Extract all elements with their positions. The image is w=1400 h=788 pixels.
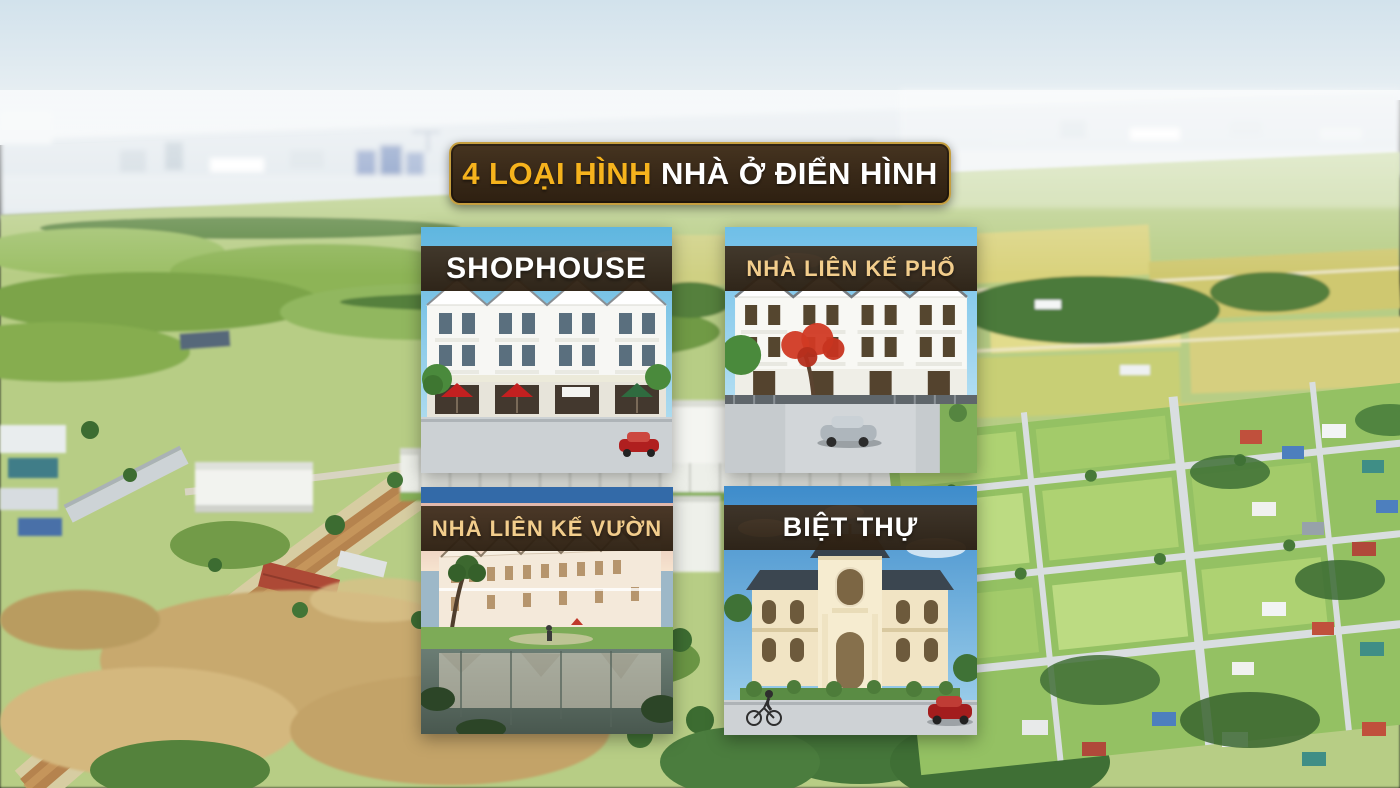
title-banner: 4 LOẠI HÌNH NHÀ Ở ĐIỂN HÌNH <box>449 142 951 205</box>
title-highlight: 4 LOẠI HÌNH <box>462 156 652 192</box>
card-title-band: NHÀ LIÊN KẾ VƯỜN <box>421 506 673 551</box>
card-label-nha-lien-ke-vuon: NHÀ LIÊN KẾ VƯỜN <box>432 516 662 542</box>
card-title-band: BIỆT THỰ <box>724 505 977 550</box>
card-shophouse: SHOPHOUSE <box>421 227 672 473</box>
card-biet-thu: BIỆT THỰ <box>724 486 977 735</box>
card-label-shophouse: SHOPHOUSE <box>446 252 647 286</box>
card-title-band: SHOPHOUSE <box>421 246 672 291</box>
card-label-biet-thu: BIỆT THỰ <box>783 512 918 543</box>
haze-right <box>900 88 1400 208</box>
card-nha-lien-ke-vuon: NHÀ LIÊN KẾ VƯỜN <box>421 487 673 734</box>
card-label-nha-lien-ke-pho: NHÀ LIÊN KẾ PHỐ <box>746 256 955 282</box>
card-nha-lien-ke-pho: NHÀ LIÊN KẾ PHỐ <box>725 227 977 473</box>
title-rest: NHÀ Ở ĐIỂN HÌNH <box>661 156 938 192</box>
card-title-band: NHÀ LIÊN KẾ PHỐ <box>725 246 977 291</box>
promo-frame: 4 LOẠI HÌNH NHÀ Ở ĐIỂN HÌNH <box>0 0 1400 788</box>
lake-reflection <box>421 649 673 734</box>
aerial-photo-background <box>0 0 1400 788</box>
